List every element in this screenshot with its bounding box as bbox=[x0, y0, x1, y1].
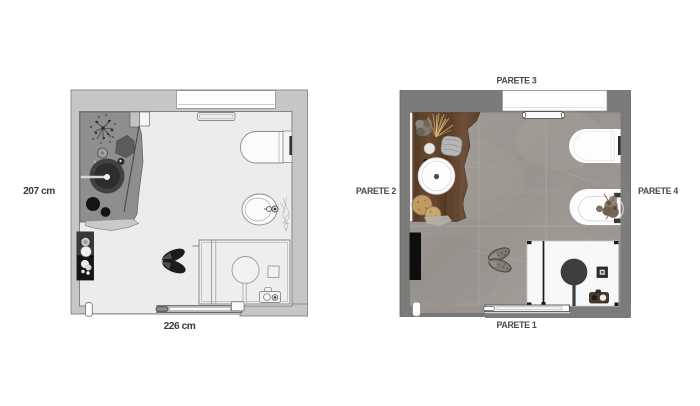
svg-text:PARETE 4: PARETE 4 bbox=[638, 186, 678, 196]
svg-text:207 cm: 207 cm bbox=[23, 186, 55, 197]
svg-text:PARETE 2: PARETE 2 bbox=[356, 186, 396, 196]
svg-text:226 cm: 226 cm bbox=[164, 321, 196, 332]
svg-text:PARETE 1: PARETE 1 bbox=[497, 320, 537, 330]
svg-text:PARETE 3: PARETE 3 bbox=[497, 76, 537, 86]
